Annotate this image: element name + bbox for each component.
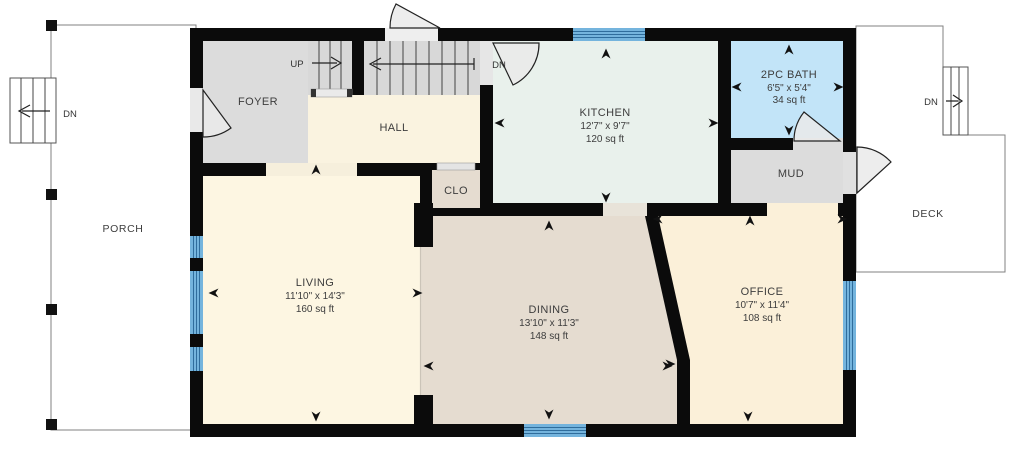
- wall-stub: [414, 395, 433, 424]
- porch-post: [46, 189, 57, 200]
- office-window: [843, 281, 856, 370]
- office-area: 108 sq ft: [743, 313, 782, 324]
- kitchen-doorway: [480, 41, 493, 85]
- porch-post: [46, 20, 57, 31]
- foyer-label: FOYER: [238, 96, 278, 108]
- floor-plan: PORCH DECK FOYER HALL CLO MUD KITCHEN 12…: [0, 0, 1024, 462]
- kitchen-dining-opening: [603, 203, 647, 216]
- deck: [856, 26, 1005, 272]
- rear-door: [390, 4, 440, 28]
- front-doorway: [190, 88, 203, 132]
- closet-label: CLO: [444, 185, 468, 197]
- dining-dimensions: 13'10" x 11'3": [519, 318, 579, 329]
- kitchen-window: [573, 28, 645, 41]
- kitchen-dimensions: 12'7" x 9'7": [580, 121, 630, 132]
- dining-label: DINING: [529, 304, 570, 316]
- bath-dimensions: 6'5" x 5'4": [767, 83, 811, 94]
- deck-floor: [856, 26, 1005, 272]
- deck-exterior-stairs: [943, 67, 968, 135]
- porch-stairs-label: DN: [63, 109, 77, 120]
- deck-label: DECK: [912, 208, 944, 220]
- office-label: OFFICE: [741, 286, 784, 298]
- porch-post: [46, 304, 57, 315]
- mud-office-opening: [767, 203, 838, 216]
- stair-landing-post: [347, 89, 352, 97]
- deck-stairs-label: DN: [924, 97, 938, 108]
- floor-plan-drawing: PORCH DECK FOYER HALL CLO MUD KITCHEN 12…: [0, 0, 1024, 462]
- hall-label: HALL: [379, 122, 408, 134]
- living-dimensions: 11'10" x 14'3": [285, 291, 345, 302]
- living-label: LIVING: [296, 277, 334, 289]
- deck-doorway: [843, 152, 856, 194]
- mud-label: MUD: [778, 168, 804, 180]
- living-area: 160 sq ft: [296, 304, 335, 315]
- office-dimensions: 10'7" x 11'4": [735, 300, 790, 311]
- stair-landing-post: [311, 89, 316, 97]
- bath-area: 34 sq ft: [773, 95, 806, 106]
- stair-landing: [311, 89, 352, 97]
- dining-area: 148 sq ft: [530, 331, 569, 342]
- up-stairs-label: UP: [290, 59, 303, 70]
- wall-stub: [414, 203, 433, 247]
- porch-label: PORCH: [103, 223, 144, 235]
- down-stairs-label: DN: [492, 60, 506, 71]
- rear-doorway: [385, 28, 438, 41]
- living-room-window: [190, 236, 203, 371]
- bath-label: 2PC BATH: [761, 69, 817, 81]
- porch-exterior-stairs: [10, 78, 56, 143]
- foyer-living-opening: [266, 163, 357, 176]
- dining-window: [524, 424, 586, 437]
- closet-door-opening: [437, 163, 475, 170]
- kitchen-label: KITCHEN: [579, 107, 630, 119]
- down-staircase: [364, 41, 480, 95]
- porch-post: [46, 419, 57, 430]
- kitchen-area: 120 sq ft: [586, 134, 625, 145]
